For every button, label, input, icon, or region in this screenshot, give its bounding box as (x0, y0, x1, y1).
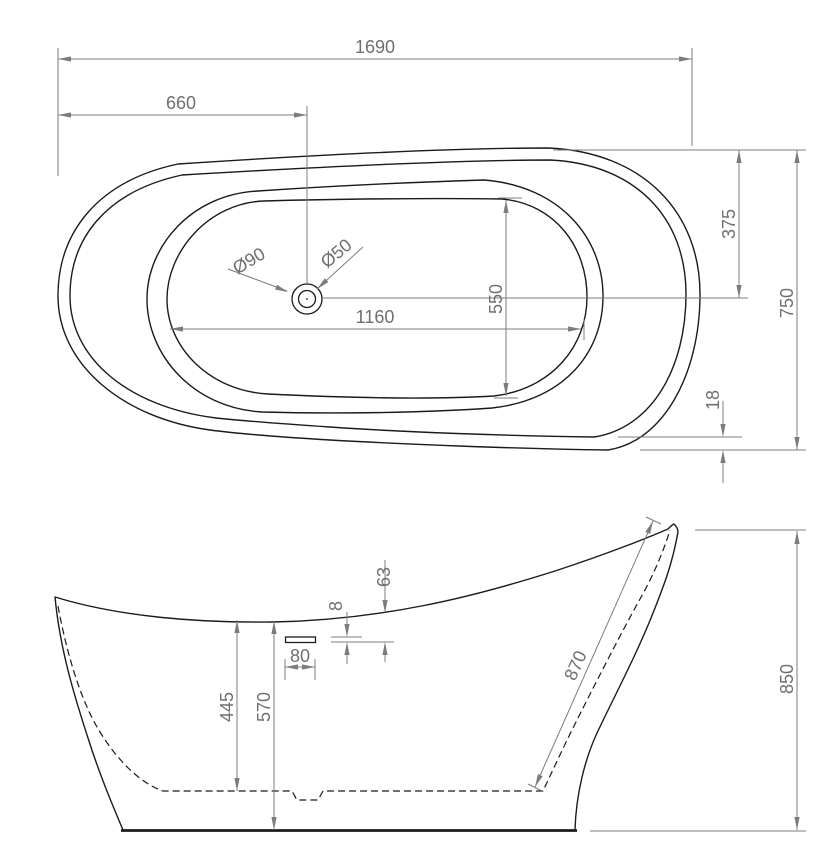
dim-1690-label: 1690 (355, 37, 395, 57)
dim-80: 80 (285, 646, 315, 680)
dim-550-label: 550 (486, 284, 506, 314)
dim-750-label: 750 (777, 288, 797, 318)
dim-drain-90: Ø90 (228, 244, 288, 292)
dim-1160: 1160 (170, 307, 584, 340)
dim-660: 660 (58, 93, 307, 283)
dim-375-label: 375 (719, 209, 739, 239)
dim-8-label: 8 (326, 601, 346, 611)
dim-63-label: 63 (374, 567, 394, 587)
dim-18: 18 (618, 390, 742, 483)
dim-drain-50-label: Ø50 (317, 235, 356, 272)
dim-660-label: 660 (166, 93, 196, 113)
top-view-outlines (58, 148, 700, 450)
dim-870-label: 870 (560, 648, 590, 684)
dim-445: 445 (217, 620, 240, 791)
dim-375: 375 (553, 150, 806, 298)
side-view: 445 570 80 8 (55, 517, 806, 831)
bathtub-dimension-drawing: 1690 660 1160 550 (0, 0, 840, 868)
outer-rim-edge (58, 148, 700, 450)
dim-80-label: 80 (290, 646, 310, 666)
side-profile-outline (55, 524, 678, 830)
dim-570-label: 570 (254, 692, 274, 722)
top-view: 1690 660 1160 550 (58, 37, 806, 483)
dim-445-label: 445 (217, 692, 237, 722)
overflow-slot (286, 637, 316, 643)
dim-drain-90-label: Ø90 (229, 244, 268, 279)
dim-drain-50: Ø50 (317, 235, 363, 289)
dim-1160-label: 1160 (356, 307, 395, 327)
dim-850-label: 850 (777, 664, 797, 694)
drawing-canvas: 1690 660 1160 550 (0, 0, 840, 868)
drain-center-mark (306, 298, 308, 300)
dim-570: 570 (254, 621, 277, 830)
dim-18-label: 18 (703, 390, 723, 410)
